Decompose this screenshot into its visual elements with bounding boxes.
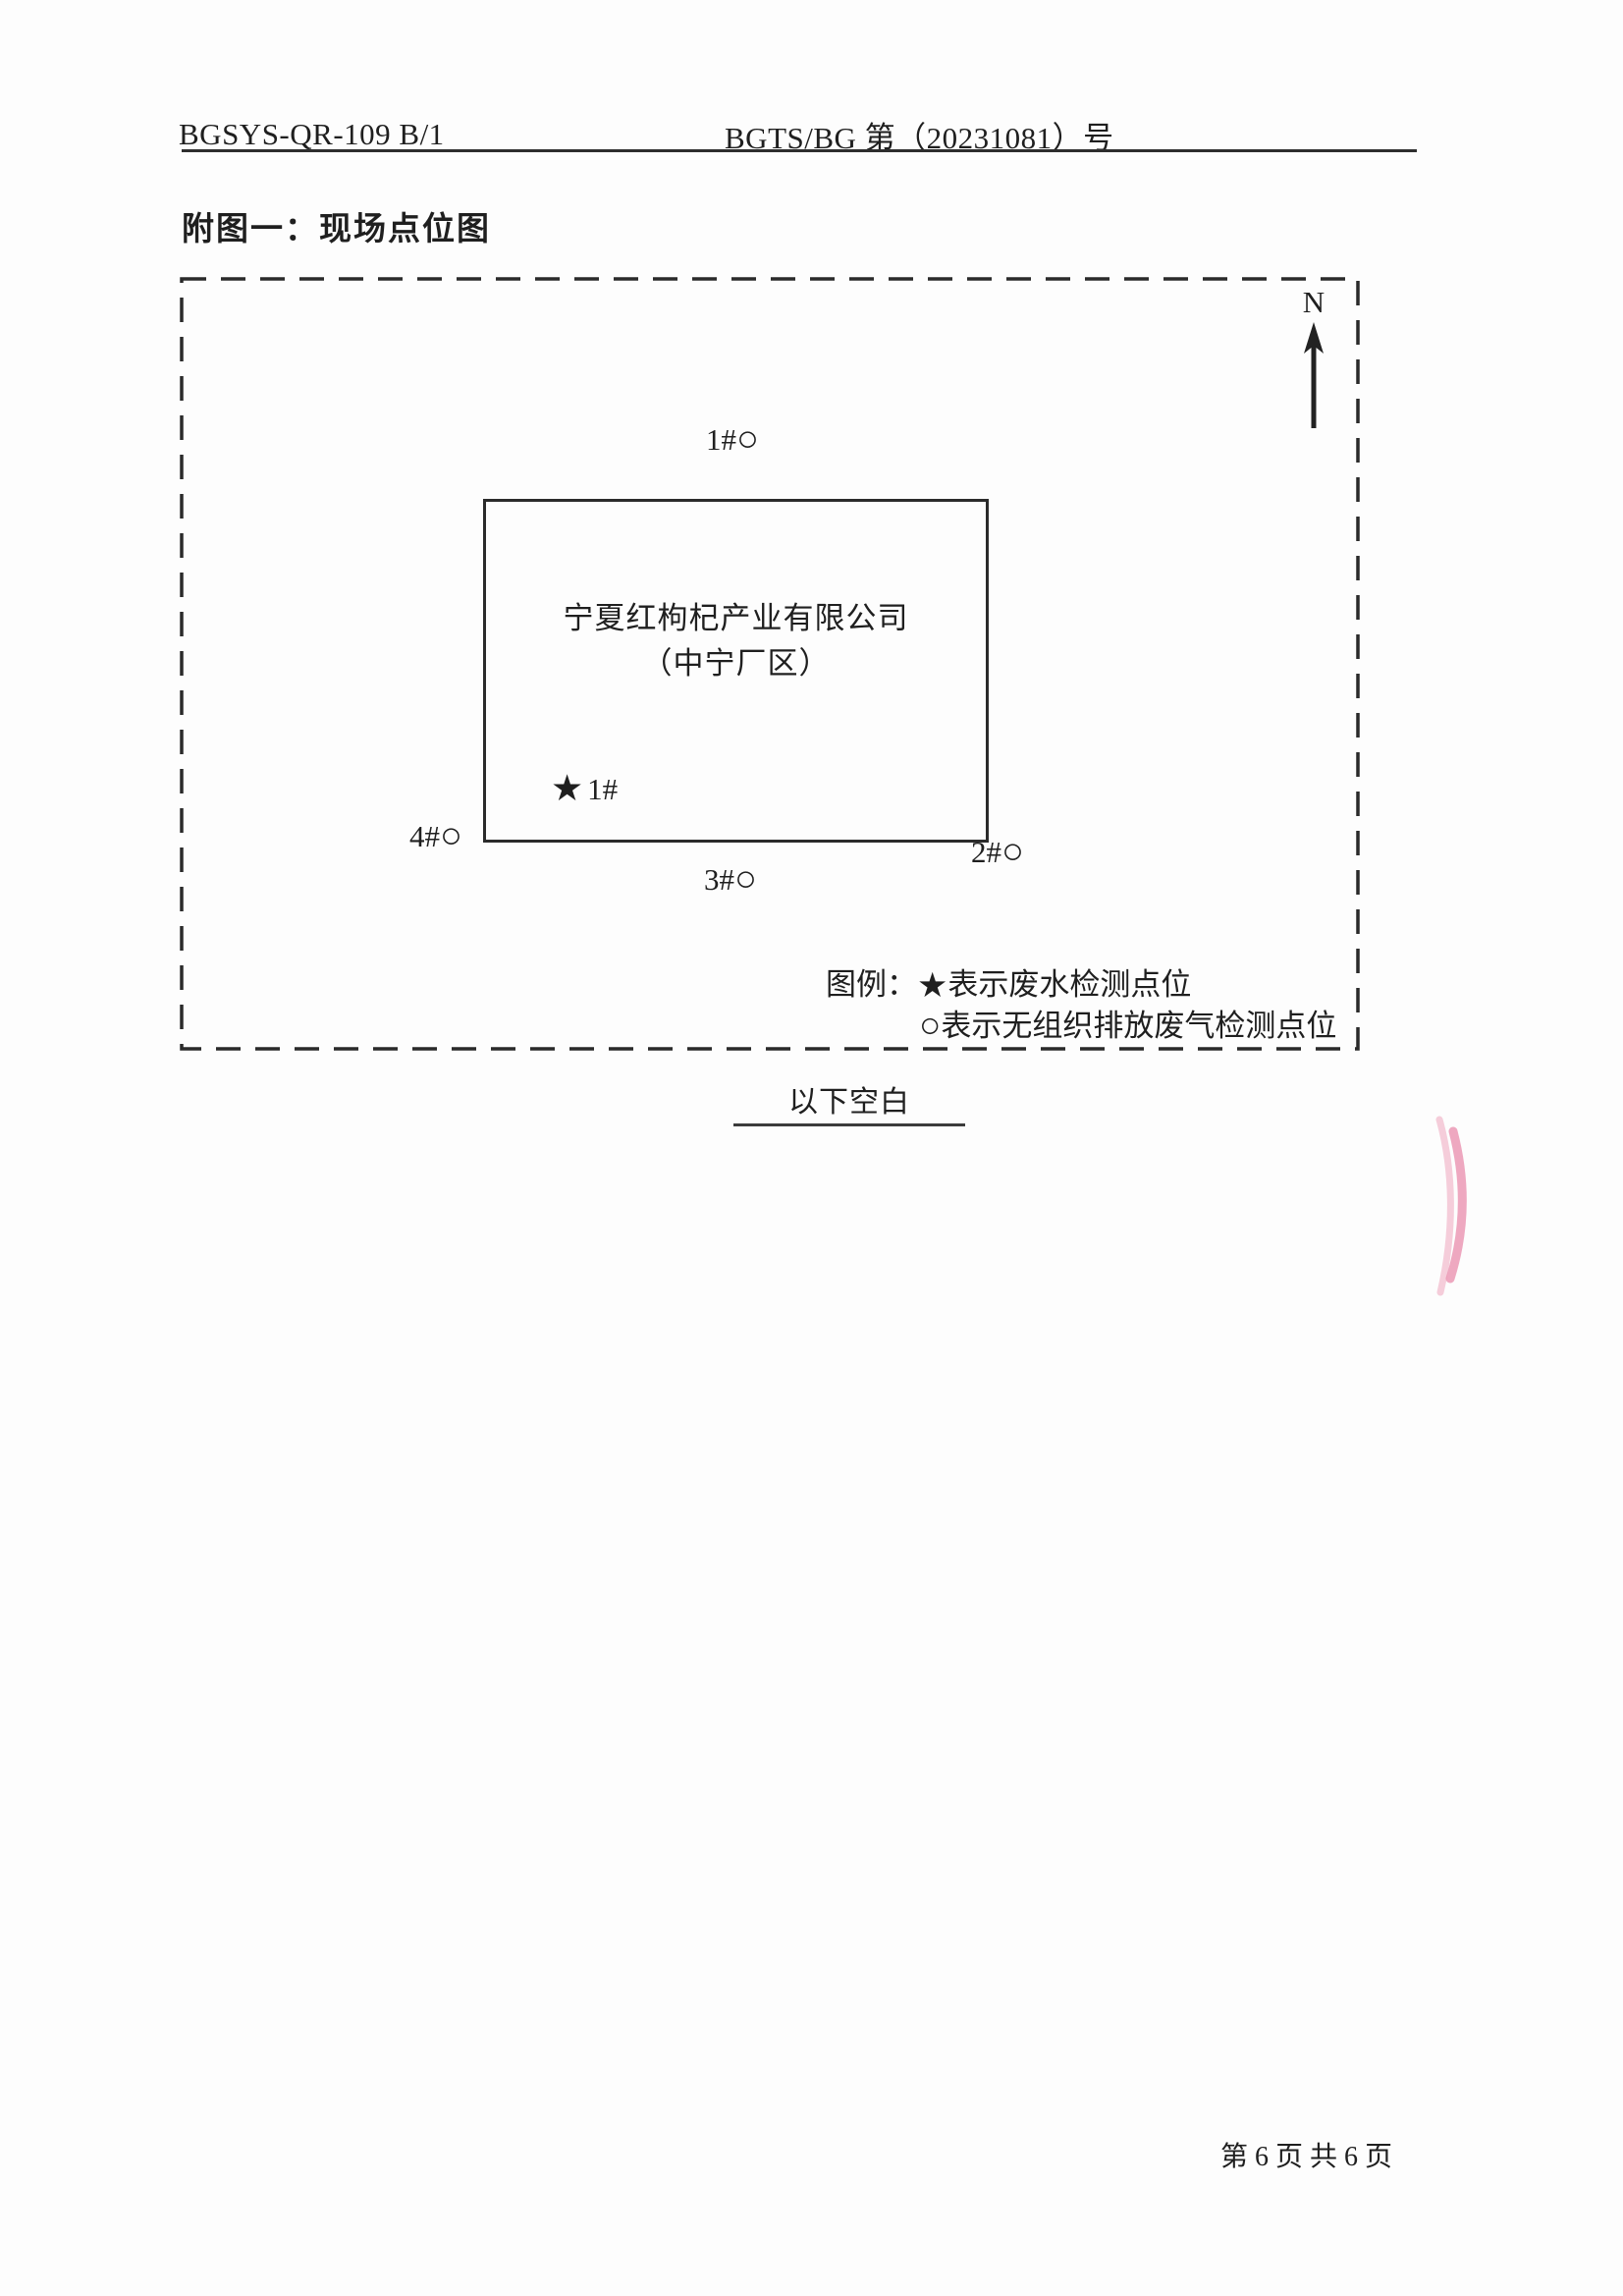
- seal-edge-mark: [1424, 1110, 1488, 1302]
- gas-point-3: 3#○: [704, 862, 757, 898]
- header-divider: [182, 149, 1417, 152]
- north-label: N: [1274, 285, 1353, 320]
- factory-name: 宁夏红枸杞产业有限公司 （中宁厂区）: [486, 596, 986, 686]
- legend-line-1: 图例：★表示废水检测点位: [826, 964, 1336, 1006]
- document-page: BGSYS-QR-109 B/1 BGTS/BG 第（20231081）号 附图…: [0, 0, 1623, 2296]
- point-label: 1#: [587, 772, 618, 807]
- north-arrow-icon: [1300, 322, 1327, 432]
- legend-title: 图例：: [826, 964, 917, 1006]
- point-label: 4#: [409, 819, 440, 854]
- factory-boundary: 宁夏红枸杞产业有限公司 （中宁厂区） ★1#: [483, 499, 989, 843]
- end-of-content-note: 以下空白: [733, 1077, 965, 1126]
- legend-line-2: ○表示无组织排放废气检测点位: [919, 1006, 1336, 1047]
- wastewater-point-1: ★1#: [551, 771, 618, 807]
- circle-marker-icon: ○: [736, 420, 759, 458]
- legend: 图例：★表示废水检测点位 ○表示无组织排放废气检测点位: [826, 964, 1336, 1047]
- circle-marker-icon: ○: [440, 817, 462, 854]
- site-map: N 1#○ 2#○ 3#○ 4#○ 宁夏红枸杞产业有限公司 （中宁厂区） ★1#: [180, 277, 1360, 1051]
- header-form-code: BGSYS-QR-109 B/1: [179, 117, 445, 152]
- gas-point-1: 1#○: [706, 422, 759, 458]
- factory-name-line1: 宁夏红枸杞产业有限公司: [486, 596, 986, 641]
- factory-name-line2: （中宁厂区）: [486, 641, 986, 686]
- gas-point-4: 4#○: [409, 819, 462, 854]
- page-number: 第 6 页 共 6 页: [1220, 2135, 1392, 2174]
- legend-text: 表示无组织排放废气检测点位: [941, 1006, 1336, 1047]
- point-label: 3#: [704, 862, 734, 898]
- page-title: 附图一：现场点位图: [182, 202, 491, 249]
- star-marker-icon: ★: [917, 968, 947, 1003]
- star-marker-icon: ★: [551, 771, 583, 807]
- seal-arc-light: [1439, 1120, 1450, 1292]
- legend-text: 表示废水检测点位: [947, 964, 1191, 1006]
- circle-marker-icon: ○: [1001, 833, 1024, 870]
- circle-marker-icon: ○: [734, 860, 757, 898]
- point-label: 1#: [706, 422, 736, 458]
- circle-marker-icon: ○: [919, 1008, 941, 1044]
